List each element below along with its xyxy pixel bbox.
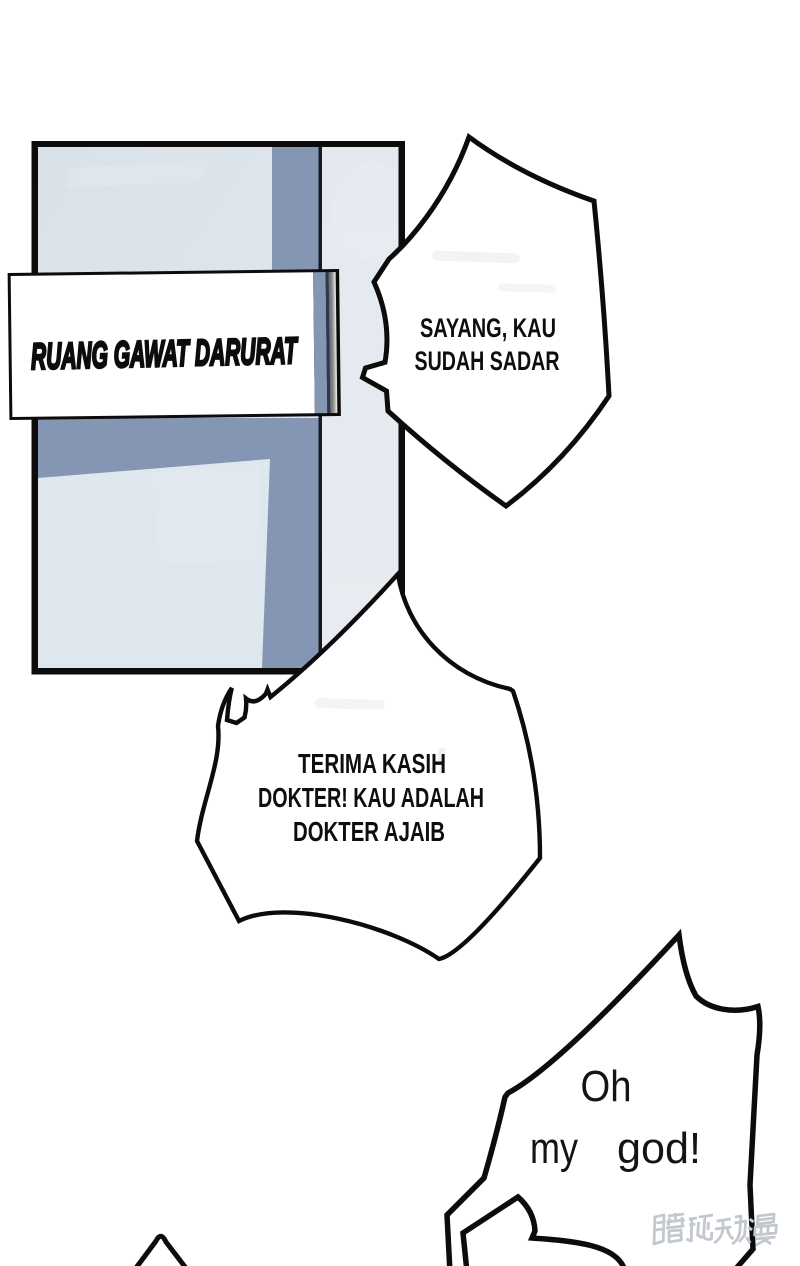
svg-text:SAYANG, KAU: SAYANG, KAU	[420, 313, 556, 343]
svg-text:TERIMA KASIH: TERIMA KASIH	[298, 748, 446, 779]
svg-text:DOKTER! KAU ADALAH: DOKTER! KAU ADALAH	[258, 782, 484, 813]
svg-text:SUDAH SADAR: SUDAH SADAR	[415, 346, 560, 376]
svg-text:my: my	[530, 1124, 578, 1173]
svg-text:RUANG GAWAT DARURAT: RUANG GAWAT DARURAT	[31, 330, 300, 377]
svg-text:Oh: Oh	[581, 1062, 632, 1111]
svg-text:DOKTER AJAIB: DOKTER AJAIB	[293, 816, 445, 847]
svg-text:god!: god!	[617, 1124, 701, 1173]
